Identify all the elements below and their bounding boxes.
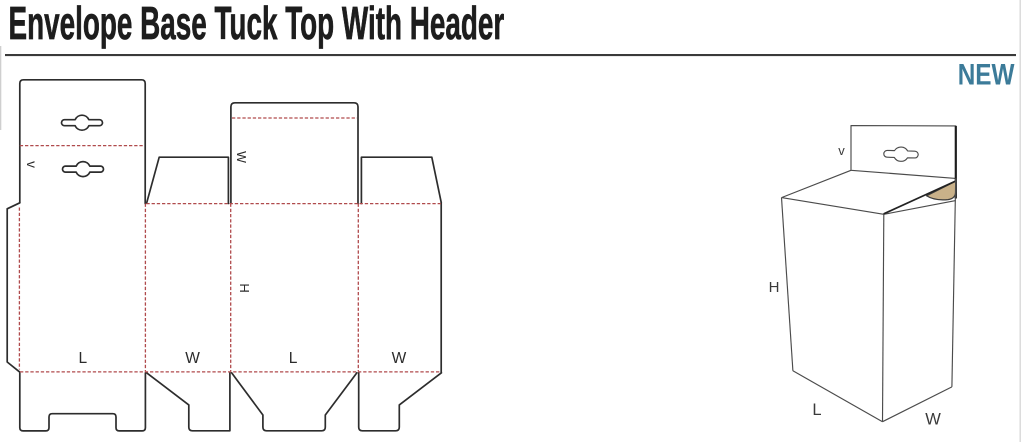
svg-text:L: L bbox=[812, 401, 821, 419]
svg-text:H: H bbox=[769, 279, 780, 296]
svg-text:W: W bbox=[234, 151, 248, 163]
svg-text:v: v bbox=[24, 161, 39, 168]
svg-text:H: H bbox=[237, 283, 252, 292]
svg-text:Envelope Base Tuck Top With He: Envelope Base Tuck Top With Header bbox=[9, 0, 505, 50]
svg-text:v: v bbox=[838, 143, 845, 158]
svg-text:W: W bbox=[925, 411, 941, 429]
svg-text:W: W bbox=[185, 350, 200, 367]
svg-text:W: W bbox=[392, 350, 407, 367]
svg-text:L: L bbox=[289, 350, 298, 367]
svg-text:NEW: NEW bbox=[958, 58, 1015, 91]
svg-text:L: L bbox=[78, 350, 87, 367]
